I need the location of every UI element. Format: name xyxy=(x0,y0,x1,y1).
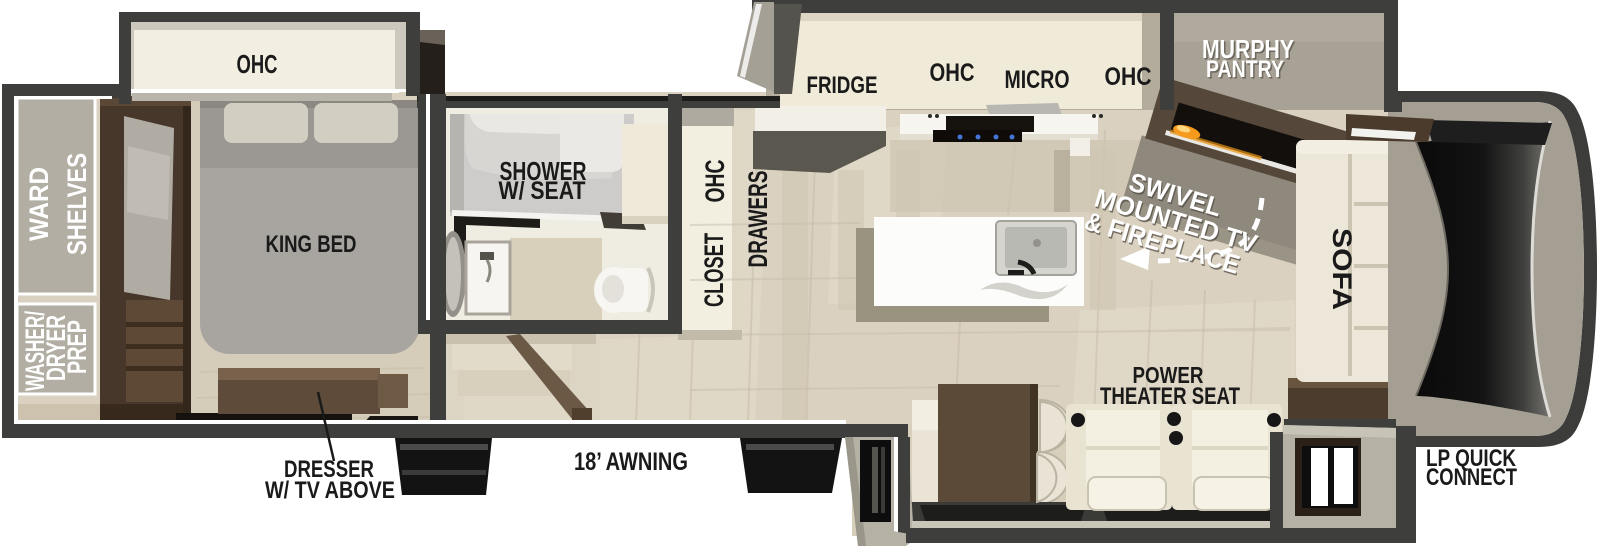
svg-text:DRAWERS: DRAWERS xyxy=(743,171,773,268)
svg-text:CONNECT: CONNECT xyxy=(1426,464,1517,491)
svg-text:OHC: OHC xyxy=(1105,63,1152,91)
svg-text:SOFA: SOFA xyxy=(1327,228,1357,310)
svg-text:18’ AWNING: 18’ AWNING xyxy=(574,448,688,476)
svg-text:OHC: OHC xyxy=(700,160,730,203)
svg-text:PREP: PREP xyxy=(62,320,92,374)
svg-text:W/ TV ABOVE: W/ TV ABOVE xyxy=(265,477,395,504)
svg-text:W/ SEAT: W/ SEAT xyxy=(499,177,586,205)
svg-text:KING BED: KING BED xyxy=(266,231,357,258)
svg-text:MICRO: MICRO xyxy=(1005,66,1070,94)
svg-text:SHELVES: SHELVES xyxy=(62,153,92,255)
svg-text:OHC: OHC xyxy=(930,59,975,87)
svg-text:CLOSET: CLOSET xyxy=(699,233,729,307)
svg-text:PANTRY: PANTRY xyxy=(1206,56,1284,83)
svg-text:OHC: OHC xyxy=(237,49,278,79)
svg-text:FRIDGE: FRIDGE xyxy=(807,72,878,99)
svg-text:WARD: WARD xyxy=(24,167,54,241)
svg-text:THEATER SEAT: THEATER SEAT xyxy=(1100,383,1240,410)
